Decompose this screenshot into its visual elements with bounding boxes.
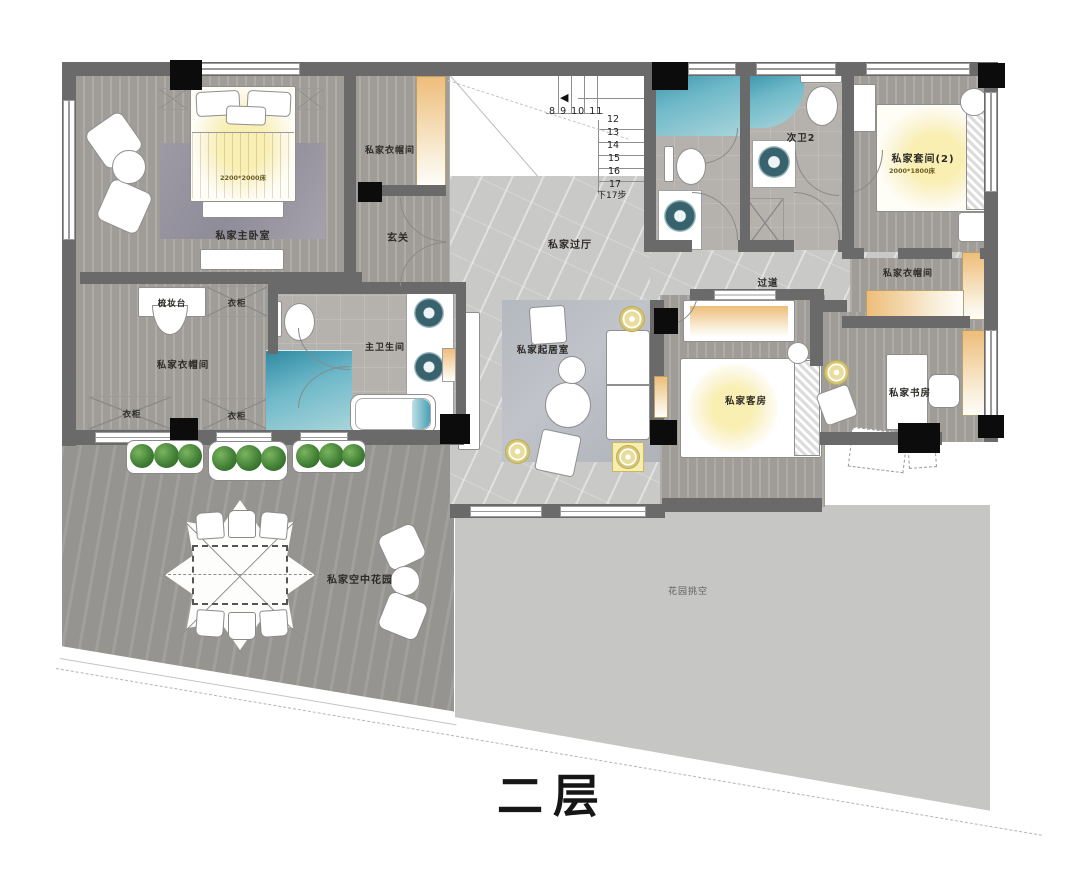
- garden-chair: [259, 511, 289, 540]
- stair-upper-numbers: 8 9 10 11: [549, 106, 603, 117]
- room-label-entry: 玄关: [387, 229, 409, 244]
- window: [985, 92, 997, 192]
- room-label-cloakroom-top: 私家衣帽间: [365, 143, 415, 156]
- shrub: [212, 446, 237, 471]
- ceiling-light-icon: [616, 445, 640, 469]
- bed-end-bench: [202, 201, 284, 218]
- shrub: [296, 444, 320, 468]
- garden-table-dashed: [192, 545, 288, 605]
- garden-chair: [228, 612, 256, 640]
- stair-step-number: 12: [607, 114, 619, 125]
- tv-bench: [200, 249, 284, 270]
- area-label-garden-void: 花园挑空: [668, 584, 708, 597]
- guest-bed-glow: [688, 364, 778, 452]
- pillow-small: [226, 105, 267, 125]
- area-label-sky-garden: 私家空中花园: [327, 571, 393, 586]
- room-label-study: 私家书房: [889, 385, 931, 399]
- armchair: [534, 428, 582, 477]
- coffee-table-round-small: [558, 356, 586, 384]
- coffee-table-round: [545, 382, 591, 428]
- wall-segment: [823, 300, 847, 312]
- bed-size-label: 2200*2000床: [220, 172, 266, 182]
- column: [978, 63, 1005, 88]
- side-table-round: [787, 342, 809, 364]
- column: [654, 308, 678, 334]
- bed-size-label: 2000*1800床: [889, 165, 935, 175]
- garden-chair: [195, 511, 225, 540]
- nightstand: [296, 88, 324, 110]
- window: [714, 290, 776, 300]
- wall-segment: [980, 248, 998, 259]
- window: [560, 506, 646, 517]
- stair-step-number: 14: [607, 140, 619, 151]
- ceiling-light-icon: [619, 306, 645, 332]
- ceiling-light-icon: [505, 439, 530, 464]
- furniture-label-wardrobe: 衣柜: [227, 297, 246, 309]
- nightstand: [158, 88, 188, 110]
- wall-segment: [644, 240, 692, 252]
- wall-cabinet-inset: [654, 376, 668, 418]
- wardrobe-strip: [416, 76, 446, 188]
- column: [652, 62, 688, 90]
- window: [470, 506, 542, 517]
- room-label-cloakroom-left: 私家衣帽间: [157, 357, 210, 371]
- column: [358, 182, 382, 202]
- room-label-hall: 私家过厅: [548, 236, 592, 251]
- toilet-tank: [664, 146, 674, 182]
- room-label-master-bath: 主卫生间: [365, 340, 405, 353]
- shrub: [319, 443, 344, 468]
- room-label-suite2: 私家套间(2): [891, 150, 954, 165]
- shrub: [178, 444, 202, 468]
- wall-segment: [382, 185, 446, 196]
- column: [170, 418, 198, 442]
- shrub: [342, 444, 365, 467]
- wall-segment: [344, 62, 356, 198]
- wall-segment: [810, 300, 823, 366]
- column: [440, 414, 470, 444]
- shrub: [130, 444, 154, 468]
- wall-segment: [740, 62, 750, 248]
- window: [985, 330, 997, 418]
- room-label-living-room: 私家起居室: [517, 342, 570, 356]
- sink-basin: [414, 352, 444, 382]
- column: [650, 420, 677, 445]
- room-label-guest-room: 私家客房: [725, 393, 767, 407]
- bathtub-faucet-end: [412, 399, 430, 429]
- wall-segment: [738, 240, 794, 252]
- sofa: [606, 330, 650, 440]
- wall-segment: [842, 248, 864, 259]
- garden-chair: [228, 510, 256, 538]
- vanity-cabinet: [442, 348, 456, 382]
- stair-arrow-icon: ◀: [560, 91, 568, 104]
- furniture-label-wardrobe: 衣柜: [122, 408, 141, 420]
- wall-segment: [898, 248, 952, 259]
- side-table-round: [112, 150, 146, 184]
- stair-direction-note: 下17步: [597, 188, 626, 201]
- garden-chair: [259, 609, 289, 638]
- window: [866, 63, 970, 75]
- room-label-bath2: 次卫2: [787, 130, 816, 144]
- furniture-label-wardrobe: 衣柜: [227, 410, 246, 422]
- column: [978, 415, 1004, 438]
- wall-segment: [842, 316, 970, 328]
- window: [688, 63, 736, 75]
- stair-step-number: 15: [608, 153, 620, 164]
- room-label-corridor: 过道: [757, 275, 778, 289]
- ceiling-light-icon: [824, 360, 849, 385]
- wall-segment: [644, 62, 656, 252]
- tv-bench: [852, 84, 876, 132]
- shrub: [236, 445, 262, 471]
- column: [170, 60, 202, 90]
- window: [63, 100, 75, 240]
- room-label-cloakroom-right: 私家衣帽间: [883, 266, 933, 279]
- guest-bed-headboard: [794, 360, 820, 456]
- shrub: [154, 443, 179, 468]
- garden-chair: [195, 609, 225, 638]
- furniture-label-dressing-table: 梳妆台: [158, 297, 187, 309]
- window: [200, 63, 300, 75]
- window-bench-cushion: [690, 306, 788, 336]
- wall-segment: [344, 196, 356, 286]
- stair-step-number: 16: [608, 166, 620, 177]
- sink-basin: [414, 298, 444, 328]
- stair-arrow-line: [578, 98, 648, 99]
- plan-title: 二层: [497, 760, 609, 826]
- column: [898, 423, 940, 453]
- wall-segment: [842, 62, 854, 248]
- office-chair: [928, 374, 960, 408]
- toilet-bowl: [806, 86, 838, 126]
- room-label-master-bedroom: 私家主卧室: [216, 227, 271, 242]
- window: [756, 63, 836, 75]
- stair-step-number: 13: [607, 127, 619, 138]
- armchair: [529, 305, 568, 345]
- wall-segment: [662, 498, 822, 512]
- shrub: [261, 446, 286, 471]
- toilet-bowl: [676, 148, 706, 185]
- floor-plan: 8 9 10 11 12 13 14 15 16 17 下17步 ◀: [0, 0, 1080, 893]
- master-bed-blanket: [192, 132, 294, 198]
- sink-basin: [758, 146, 790, 178]
- wall-segment: [268, 294, 278, 354]
